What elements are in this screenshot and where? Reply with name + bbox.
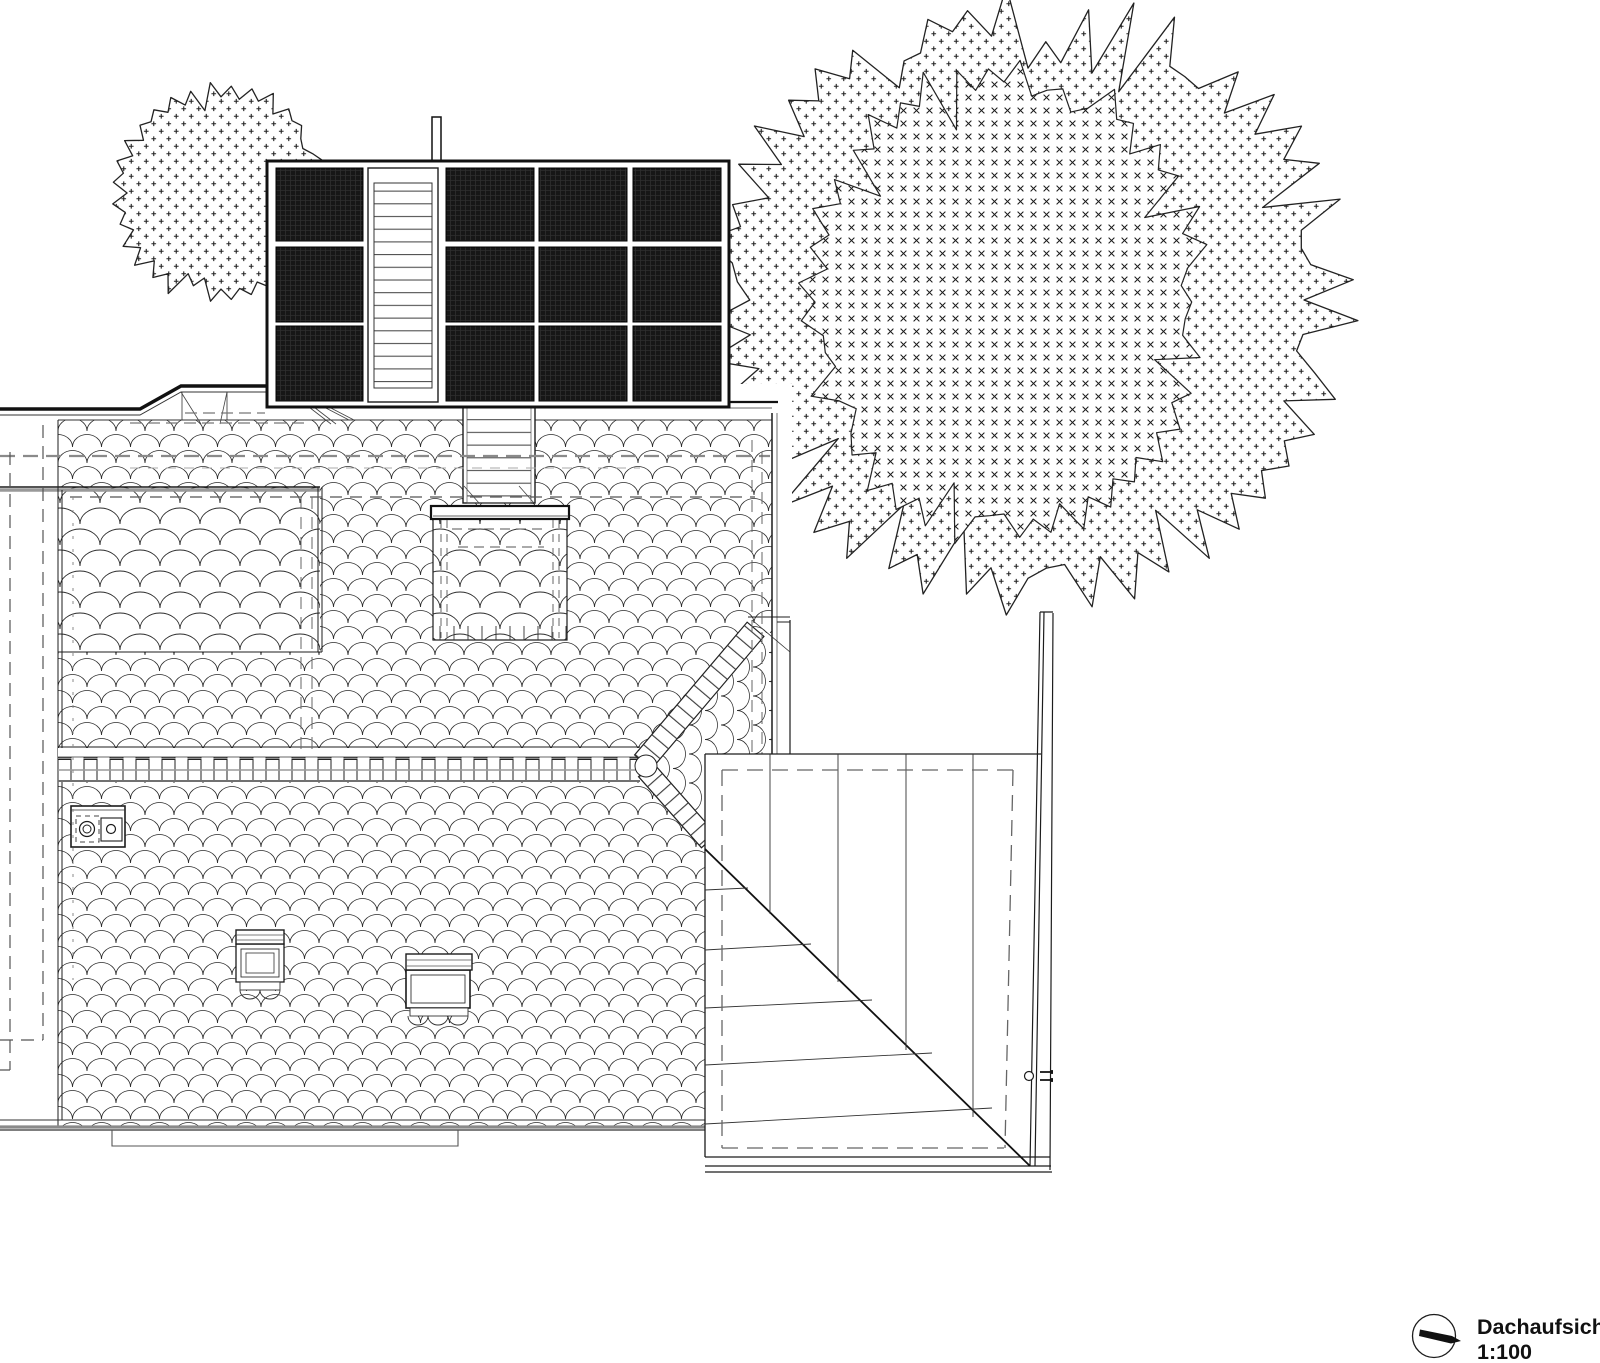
solar-panel	[633, 247, 721, 322]
antenna-mast	[432, 117, 441, 163]
drawing-scale: 1:100	[1477, 1340, 1532, 1363]
solar-panel	[539, 326, 627, 401]
solar-walkway-ladder	[368, 168, 438, 402]
solar-panel	[539, 247, 627, 322]
roof-plan-drawing: Dachaufsicht 1:100	[0, 0, 1600, 1363]
solar-panel	[446, 168, 534, 241]
skylight-left	[236, 930, 284, 999]
roof-dormer	[431, 506, 569, 640]
chimney	[71, 806, 125, 847]
solar-panel	[276, 326, 363, 401]
hip-ridge-junction-cap	[635, 755, 657, 777]
roof-ridge	[58, 747, 640, 782]
solar-panel	[276, 247, 363, 322]
solar-panel	[276, 168, 363, 241]
solar-panel	[446, 247, 534, 322]
solar-array	[267, 117, 729, 407]
drawing-title: Dachaufsicht	[1477, 1315, 1600, 1339]
solar-panel	[539, 168, 627, 241]
solar-panels	[276, 168, 721, 401]
solar-panel	[633, 168, 721, 241]
solar-panel	[446, 326, 534, 401]
main-roof	[0, 384, 792, 1174]
skylight-right	[406, 954, 472, 1025]
solar-panel	[633, 326, 721, 401]
roof-plan-sheet: Dachaufsicht 1:100	[0, 0, 1600, 1363]
